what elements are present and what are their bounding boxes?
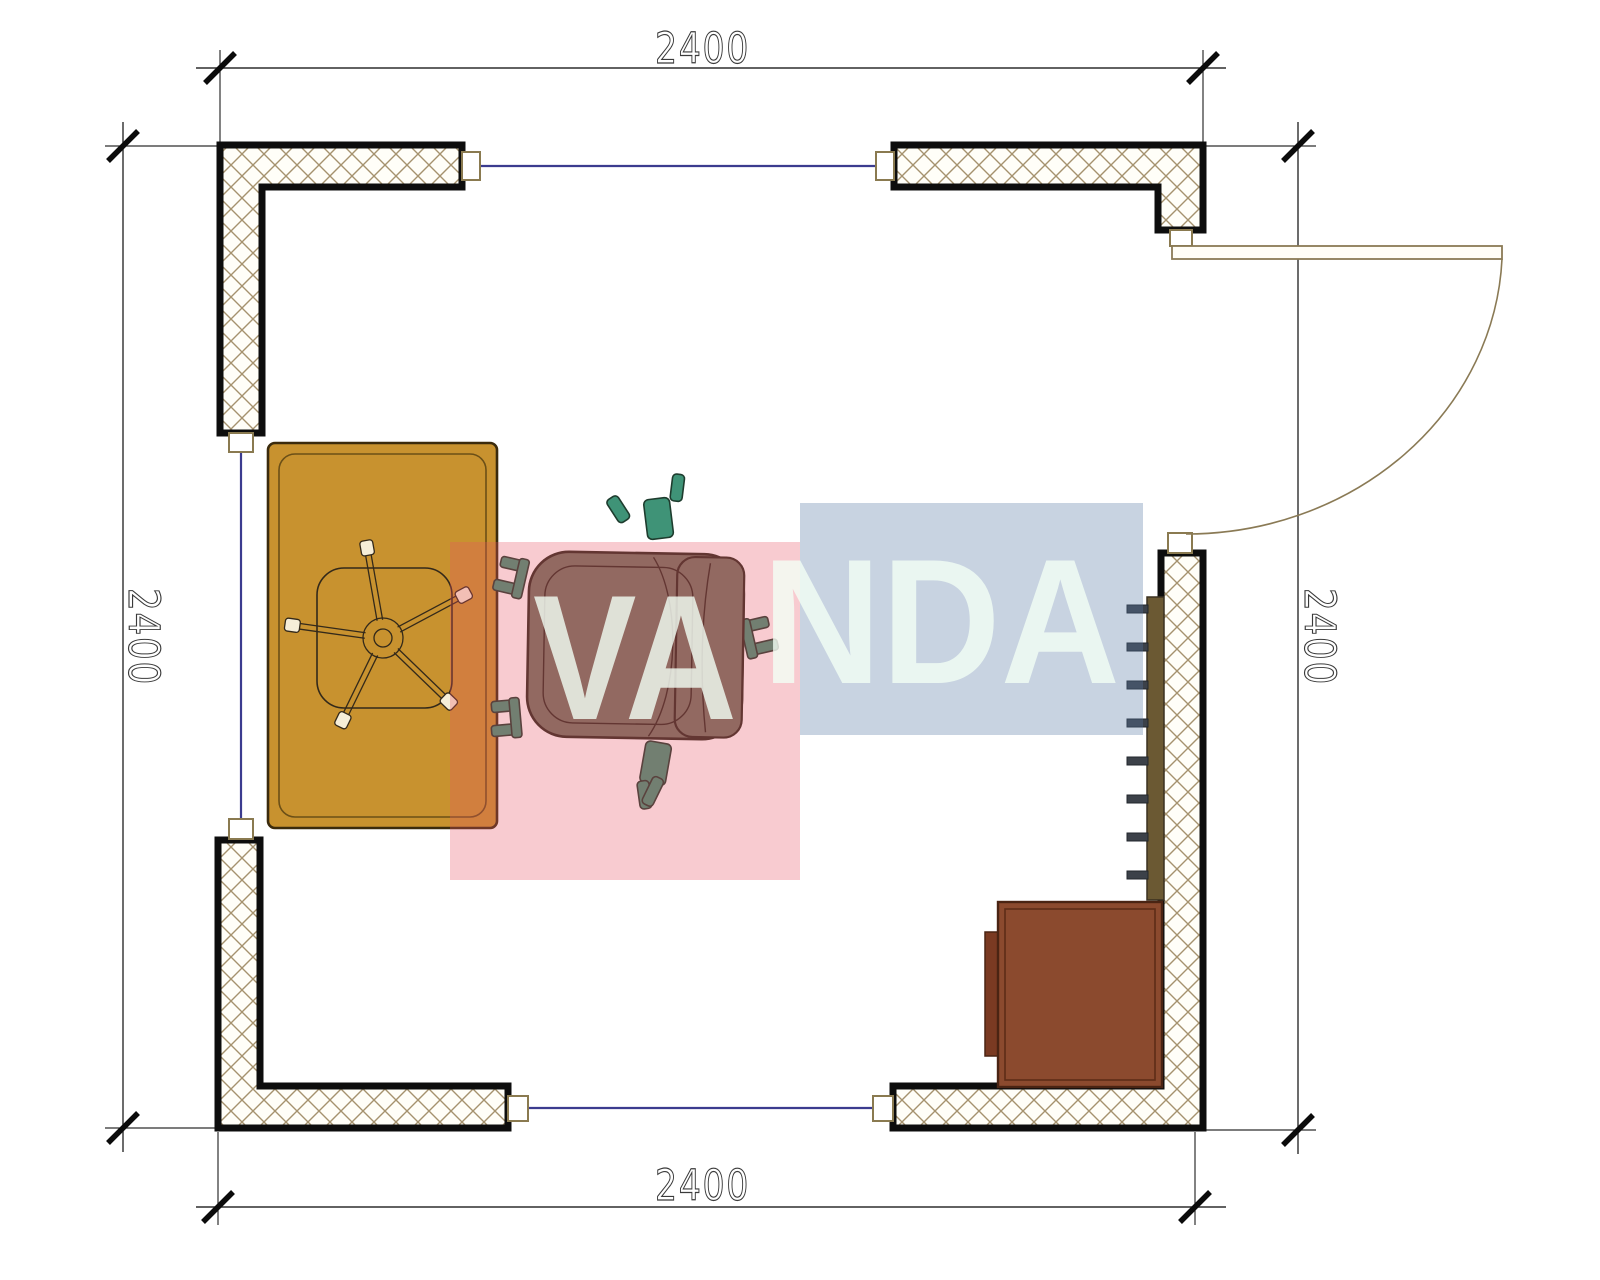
- window-cap: [229, 433, 253, 452]
- wall-top-right: [894, 145, 1203, 230]
- floor-plan-canvas: 2400 2400 2400 2400: [0, 0, 1600, 1280]
- door-leaf: [1172, 246, 1502, 259]
- radiator-fin: [1127, 833, 1148, 841]
- window-cap: [873, 1096, 893, 1121]
- radiator-body: [1147, 597, 1164, 900]
- door-jamb-cap: [1170, 230, 1192, 246]
- radiator-fin: [1127, 795, 1148, 803]
- watermark-text-right: NDA: [762, 522, 1120, 721]
- cabinet: [985, 902, 1162, 1087]
- dimension-top: 2400: [196, 24, 1226, 144]
- wall-top-left: [220, 145, 462, 433]
- door-jamb-cap: [1168, 533, 1192, 553]
- wall-bottom-left: [218, 840, 508, 1128]
- window-cap: [876, 152, 894, 180]
- dimension-label-left: 2400: [118, 588, 168, 686]
- watermark: VA NDA: [450, 503, 1143, 880]
- dimension-bottom: 2400: [196, 1132, 1226, 1225]
- floor-plan-page: 2400 2400 2400 2400: [0, 0, 1600, 1280]
- window-cap: [508, 1096, 528, 1121]
- dimension-label-right: 2400: [1294, 588, 1344, 686]
- dimension-label-bottom: 2400: [655, 1161, 750, 1211]
- chair-caster-top: [603, 472, 692, 544]
- radiator-fin: [1127, 871, 1148, 879]
- watermark-text-left: VA: [533, 558, 737, 757]
- door: [1168, 230, 1502, 553]
- window-left: [229, 433, 253, 839]
- door-swing-arc: [1186, 259, 1502, 534]
- window-bottom: [508, 1096, 893, 1121]
- window-top: [462, 152, 894, 180]
- window-cap: [462, 152, 480, 180]
- cabinet-body: [998, 902, 1162, 1087]
- radiator-fin: [1127, 757, 1148, 765]
- dimension-right: 2400: [1205, 122, 1344, 1154]
- dimension-left: 2400: [105, 122, 218, 1152]
- dimension-label-top: 2400: [655, 24, 750, 74]
- window-cap: [229, 819, 253, 839]
